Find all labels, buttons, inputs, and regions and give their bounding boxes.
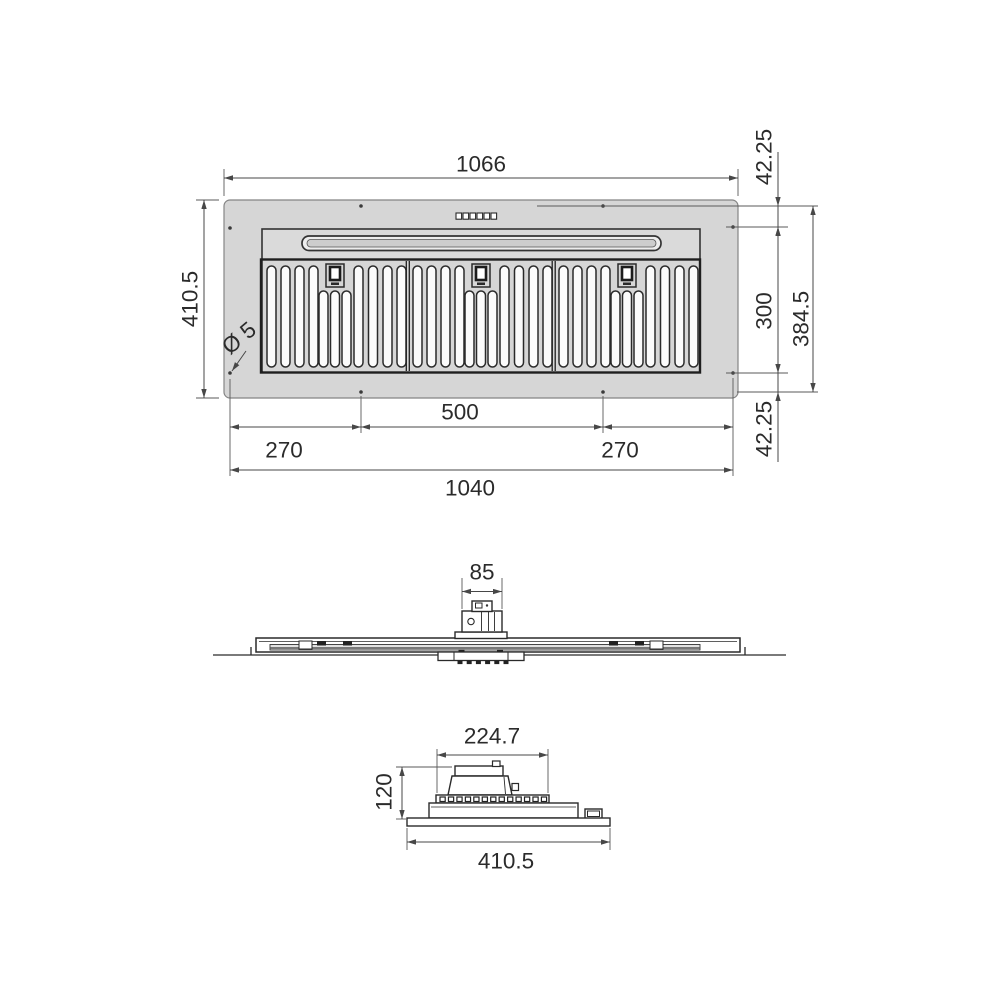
filter-clip	[326, 264, 344, 287]
dim-label-body-depth: 300	[752, 292, 777, 330]
mounting-hole	[228, 371, 232, 375]
side-body-band	[429, 803, 578, 818]
vent-strip	[436, 795, 549, 803]
motor-housing	[448, 776, 512, 795]
light-strip	[302, 236, 661, 251]
dim-overall-width: 1066	[224, 152, 738, 197]
control-button	[477, 213, 483, 219]
control-button	[470, 213, 476, 219]
dim-label-offset-top: 42.25	[752, 129, 777, 185]
dim-label-hole-pattern-depth: 384.5	[789, 291, 814, 347]
control-button	[484, 213, 490, 219]
dim-label-hole-pattern-width: 1040	[445, 476, 495, 501]
housing-tab	[512, 784, 519, 791]
mounting-hole	[228, 226, 232, 230]
filter-bank	[261, 260, 700, 373]
control-button	[491, 213, 497, 219]
mounting-hole	[359, 204, 363, 208]
junction-box	[585, 809, 602, 819]
dim-label-overall-width: 1066	[456, 152, 506, 177]
center-under-box	[438, 652, 524, 664]
dim-label-duct-width: 85	[469, 560, 494, 585]
dim-label-body-height: 120	[372, 773, 397, 811]
clip-mark	[635, 641, 644, 646]
bracket-left	[299, 641, 312, 649]
dim-label-body-depth: 410.5	[478, 849, 534, 874]
top-view: 1066 410.5 Ø 5 42.25 300 42.25	[178, 129, 819, 501]
front-view: 85	[213, 560, 786, 665]
side-view: 224.7 120 410.5	[372, 724, 611, 874]
dim-body-depth: 410.5	[407, 828, 610, 874]
filter-section	[413, 264, 552, 367]
base-plate	[407, 818, 610, 826]
bracket-right	[650, 641, 663, 649]
mounting-hole	[601, 390, 605, 394]
lid-notch	[493, 761, 501, 767]
dim-label-motor-length: 224.7	[464, 724, 520, 749]
dim-label-hole-offset-left: 270	[265, 438, 303, 463]
motor-lid	[455, 766, 503, 776]
clip-mark	[609, 641, 618, 646]
control-button	[463, 213, 469, 219]
control-button	[456, 213, 462, 219]
dim-overall-depth: 410.5	[178, 200, 220, 398]
filter-section	[559, 264, 698, 367]
filter-clip	[472, 264, 490, 287]
filter-section	[267, 264, 406, 367]
dim-label-overall-depth: 410.5	[178, 271, 203, 327]
filter-clip	[618, 264, 636, 287]
cooker-hood-technical-drawing: 1066 410.5 Ø 5 42.25 300 42.25	[0, 0, 1000, 1000]
screw	[468, 618, 474, 624]
dim-label-hole-spacing-center: 500	[441, 400, 479, 425]
clip-mark	[317, 641, 326, 646]
dim-label-hole-offset-right: 270	[601, 438, 639, 463]
clip-mark	[343, 641, 352, 646]
dim-label-offset-bottom: 42.25	[752, 401, 777, 457]
mounting-hole	[359, 390, 363, 394]
